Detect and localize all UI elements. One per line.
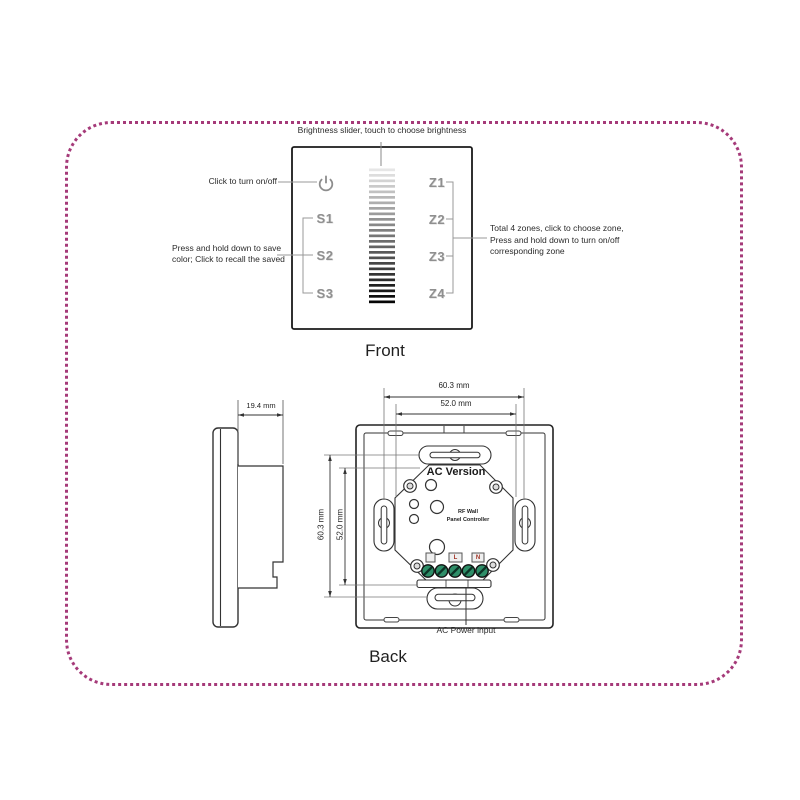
dimension-depth: 19.4 mm <box>233 401 289 410</box>
slider-bar <box>369 240 395 243</box>
module-title: AC Version <box>406 466 506 478</box>
component-hole <box>430 540 445 555</box>
slider-bar <box>369 235 395 238</box>
terminal-screw <box>449 565 461 577</box>
slider-bar <box>369 207 395 210</box>
slider-bar <box>369 295 395 298</box>
slider-bar <box>369 174 395 177</box>
slider-bar <box>369 268 395 271</box>
module-line1: RF Wall <box>433 509 503 515</box>
slider-bar <box>369 191 395 194</box>
dimension-width-outer: 60.3 mm <box>414 381 494 390</box>
side-view <box>213 400 283 627</box>
zone-key-z1: Z1 <box>424 175 450 190</box>
terminal-screw <box>422 565 434 577</box>
component-hole <box>426 480 437 491</box>
slider-bar <box>369 202 395 205</box>
snap-slot <box>388 431 403 436</box>
slider-bar <box>369 284 395 287</box>
screw <box>404 480 417 493</box>
dimension-height-inner: 52.0 mm <box>336 497 345 553</box>
snap-slot <box>504 618 519 623</box>
dimension-height-outer: 60.3 mm <box>317 497 326 553</box>
terminal-screw <box>476 565 488 577</box>
slider-bar <box>369 180 395 183</box>
slider-bar <box>369 262 395 265</box>
snap-slot <box>506 431 521 436</box>
slider-bar <box>369 213 395 216</box>
back-box-profile <box>238 466 283 588</box>
zone-key-z2: Z2 <box>424 212 450 227</box>
slider-bar <box>369 251 395 254</box>
slider-bar <box>369 169 395 172</box>
component-hole <box>410 515 419 524</box>
connector-bar <box>417 580 491 588</box>
save-annotation-line2: color; Click to recall the saved <box>172 254 292 264</box>
front-caption: Front <box>333 341 437 361</box>
component-hole <box>410 500 419 509</box>
back-panel <box>324 388 553 628</box>
scene-key-s2: S2 <box>312 248 338 263</box>
slider-bar <box>369 279 395 282</box>
brightness-annotation: Brightness slider, touch to choose brigh… <box>268 125 496 135</box>
ac-power-label: AC Power input <box>416 625 516 635</box>
mounting-keyhole-right <box>515 499 535 551</box>
mounting-keyhole-left <box>374 499 394 551</box>
line-art <box>0 0 800 800</box>
zones-annotation-line3: corresponding zone <box>490 246 660 256</box>
zones-annotation-line1: Total 4 zones, click to choose zone, <box>490 223 660 233</box>
slider-bar <box>369 257 395 260</box>
mounting-keyhole-top <box>419 446 491 464</box>
slider-bar <box>369 224 395 227</box>
scene-key-s3: S3 <box>312 286 338 301</box>
slider-bar <box>369 229 395 232</box>
terminal-tab <box>426 553 435 562</box>
dimension-width-inner: 52.0 mm <box>416 399 496 408</box>
onoff-annotation: Click to turn on/off <box>178 176 277 186</box>
slider-bar <box>369 246 395 249</box>
slider-bar <box>369 185 395 188</box>
slider-bar <box>369 196 395 199</box>
terminal-block <box>422 565 488 577</box>
terminal-screw <box>462 565 474 577</box>
module-line2: Panel Controller <box>433 517 503 523</box>
mounting-keyhole-bottom <box>427 588 483 609</box>
save-annotation-line1: Press and hold down to save <box>172 243 292 253</box>
slider-bar <box>369 218 395 221</box>
terminal-screw <box>435 565 447 577</box>
slider-bar <box>369 301 395 304</box>
scene-key-s1: S1 <box>312 211 338 226</box>
snap-slot <box>384 618 399 623</box>
diagram-canvas: Brightness slider, touch to choose brigh… <box>0 0 800 800</box>
back-caption: Back <box>336 647 440 667</box>
slider-bar <box>369 290 395 293</box>
terminal-label-n: N <box>472 555 484 561</box>
screw <box>490 481 503 494</box>
terminal-label-l: L <box>449 555 462 561</box>
slider-bar <box>369 273 395 276</box>
zone-key-z4: Z4 <box>424 286 450 301</box>
zone-key-z3: Z3 <box>424 249 450 264</box>
zones-annotation-line2: Press and hold down to turn on/off <box>490 235 660 245</box>
